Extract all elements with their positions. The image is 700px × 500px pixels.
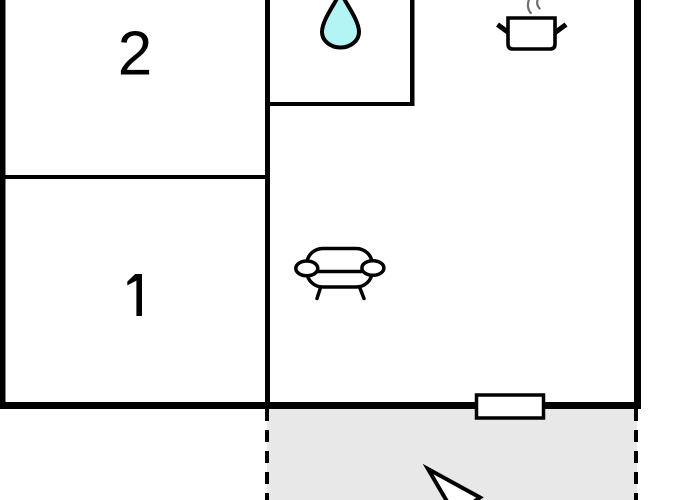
svg-text:2: 2 — [118, 20, 152, 89]
